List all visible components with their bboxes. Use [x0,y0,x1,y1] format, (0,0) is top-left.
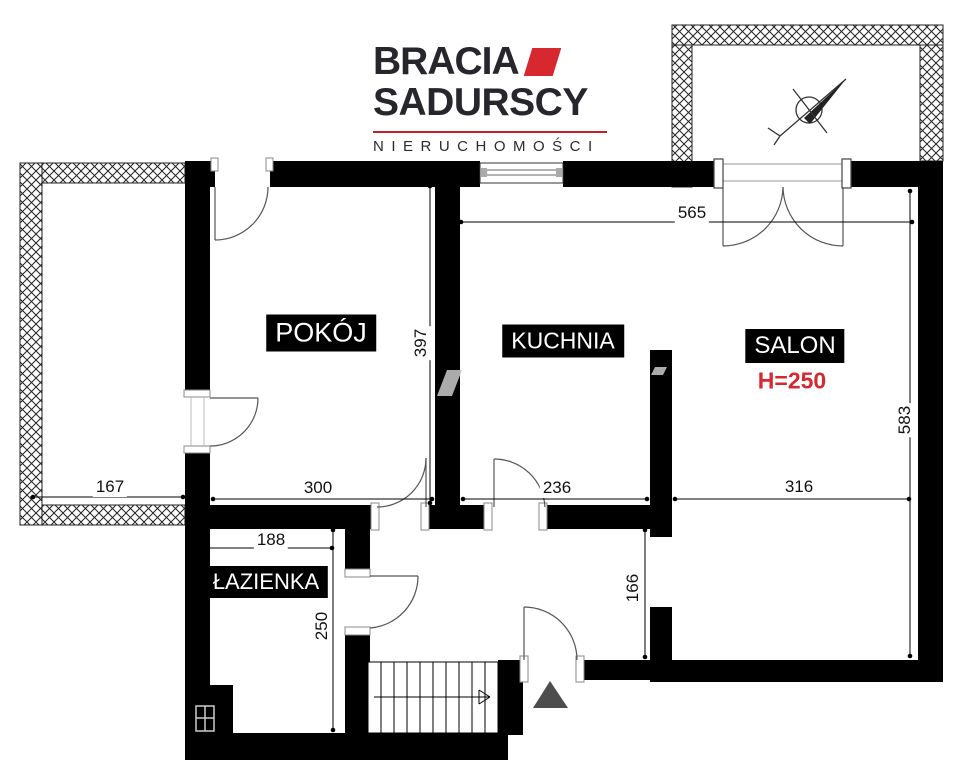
bathroom-door [345,569,418,635]
kitchen-window [480,163,563,183]
wall-segment [185,161,210,395]
wall-segment [918,161,943,682]
wall-segment [580,660,652,680]
wall-segment [185,733,508,760]
dim-hall-opening-height: 166 [623,571,643,605]
dim-kuchnia-width: 236 [540,478,574,498]
dim-salon-height: 583 [895,403,915,437]
logo-brand-text1: BRACIA [373,42,519,81]
staircase [368,662,498,733]
balcony-wall-hatch [672,25,943,45]
logo-brand-line2: SADURSCY [373,83,613,122]
logo-divider [373,131,607,133]
balcony-wall-hatch [920,45,943,161]
wall-segment [270,161,480,187]
balcony-double-door [714,159,851,246]
room-label-salon: SALON [745,329,844,363]
balcony-wall-hatch [42,505,185,525]
wall-segment [426,505,488,529]
wall-segment [498,660,523,735]
balcony-wall-hatch [20,163,42,525]
salon-height-note: H=250 [755,368,829,395]
pokoj-balcony-door [184,390,258,453]
wall-pillar [185,685,233,735]
logo-brand-line1: BRACIA [373,42,613,81]
entrance-marker-icon [533,681,568,708]
wall-segment [345,505,370,575]
dim-salon-width: 316 [782,477,816,497]
pokoj-top-door [211,158,273,240]
wall-segment [650,350,672,537]
entrance-door [520,607,584,682]
dim-lazienka-width: 188 [254,530,288,550]
floor-plan: BRACIA SADURSCY NIERUCHOMOŚCI POKÓJ KUCH… [0,0,969,768]
pokoj-hall-door [371,458,429,530]
logo-tagline: NIERUCHOMOŚCI [373,138,613,155]
wall-segment [650,660,943,682]
dim-lazienka-height: 250 [312,609,332,643]
logo-red-slab-icon [523,48,561,76]
dim-top-width: 565 [675,203,709,223]
dim-pokoj-width: 300 [301,478,335,498]
agency-logo: BRACIA SADURSCY NIERUCHOMOŚCI [373,42,613,155]
dim-left-balcony-width: 167 [93,477,127,497]
wall-segment [435,187,460,505]
room-label-kuchnia: KUCHNIA [502,325,624,358]
north-arrow-icon [768,79,846,145]
walls [185,161,943,760]
room-label-lazienka: ŁAZIENKA [204,566,328,598]
left-balcony [20,163,185,525]
kitchen-hall-door [484,459,547,530]
balcony-wall-hatch [42,163,185,183]
wall-segment [650,607,672,660]
wall-segment [563,161,715,187]
room-label-pokoj: POKÓJ [266,315,376,352]
watermark [437,367,667,396]
dimension-lines [30,184,914,733]
dim-pokoj-height: 397 [411,326,431,360]
